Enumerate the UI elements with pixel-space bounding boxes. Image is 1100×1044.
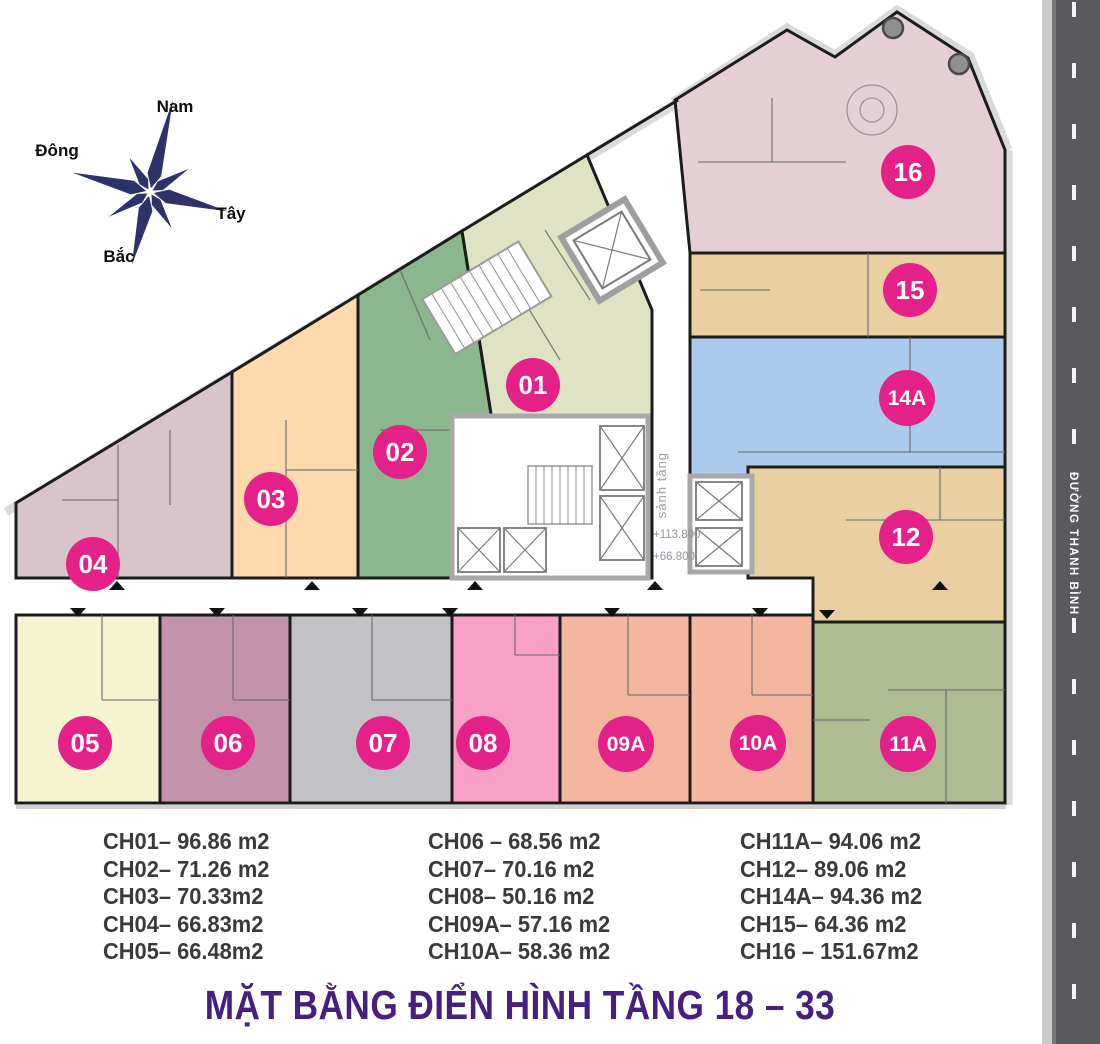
unit-04-area	[16, 372, 232, 578]
legend-item: CH14A– 94.36 m2	[740, 883, 922, 911]
badge-label: 01	[519, 370, 548, 400]
legend-item: CH04– 66.83m2	[103, 911, 269, 939]
unit-03-badge: 03	[244, 472, 298, 526]
legend-item: CH06 – 68.56 m2	[428, 828, 610, 856]
legend-item: CH12– 89.06 m2	[740, 856, 922, 884]
legend-item: CH02– 71.26 m2	[103, 856, 269, 884]
legend-item: CH05– 66.48m2	[103, 938, 269, 966]
unit-04-badge: 04	[66, 537, 120, 591]
badge-label: 16	[894, 157, 923, 187]
corridor-outline-wall	[587, 100, 678, 155]
legend-item: CH03– 70.33m2	[103, 883, 269, 911]
unit-06-area	[160, 615, 290, 803]
unit-11A-area	[813, 622, 1005, 803]
compass-rose: Nam Đông Tây Bắc	[35, 97, 246, 266]
legend-item: CH09A– 57.16 m2	[428, 911, 610, 939]
badge-label: 09A	[607, 733, 646, 756]
road: ĐƯỜNG THANH BÌNH	[1042, 0, 1100, 1044]
level-upper-label: +113.800	[653, 529, 700, 541]
compass-star	[71, 98, 230, 266]
unit-08-badge: 08	[456, 716, 510, 770]
unit-16-badge: 16	[881, 145, 935, 199]
road-curb	[1052, 0, 1056, 1044]
legend-item: CH16 – 151.67m2	[740, 938, 922, 966]
badge-label: 15	[896, 275, 925, 305]
badge-label: 04	[79, 549, 108, 579]
badge-label: 11A	[889, 733, 926, 756]
unit-14A-badge: 14A	[879, 370, 935, 426]
unit-15-area	[690, 253, 1005, 337]
unit-12-badge: 12	[879, 510, 933, 564]
badge-label: 12	[892, 522, 921, 552]
road-name-label: ĐƯỜNG THANH BÌNH	[1067, 472, 1080, 616]
badge-label: 08	[469, 728, 498, 758]
badge-label: 05	[71, 728, 100, 758]
compass-label-bac: Bắc	[103, 247, 134, 266]
unit-11A-badge: 11A	[880, 716, 936, 772]
badge-label: 14A	[888, 387, 927, 410]
compass-label-dong: Đông	[35, 141, 78, 160]
legend-column-2: CH06 – 68.56 m2 CH07– 70.16 m2 CH08– 50.…	[428, 828, 610, 966]
unit-14A-area	[690, 337, 1005, 480]
legend-item: CH07– 70.16 m2	[428, 856, 610, 884]
legend-column-1: CH01– 96.86 m2 CH02– 71.26 m2 CH03– 70.3…	[103, 828, 269, 966]
badge-label: 07	[369, 728, 398, 758]
unit-12-area	[748, 467, 1005, 622]
legend-item: CH15– 64.36 m2	[740, 911, 922, 939]
badge-label: 02	[386, 437, 415, 467]
unit-07-area	[290, 615, 452, 803]
legend-item: CH10A– 58.36 m2	[428, 938, 610, 966]
core-stairs	[528, 466, 592, 524]
lobby-label: sảnh tầng	[654, 452, 669, 518]
badge-label: 03	[257, 484, 286, 514]
unit-06-badge: 06	[201, 716, 255, 770]
badge-label: 06	[214, 728, 243, 758]
unit-09A-badge: 09A	[598, 716, 654, 772]
badge-label: 10A	[739, 732, 778, 755]
unit-07-badge: 07	[356, 716, 410, 770]
unit-10A-badge: 10A	[730, 715, 786, 771]
road-sidewalk	[1042, 0, 1052, 1044]
legend-item: CH08– 50.16 m2	[428, 883, 610, 911]
legend-column-3: CH11A– 94.06 m2 CH12– 89.06 m2 CH14A– 94…	[740, 828, 922, 966]
legend-item: CH01– 96.86 m2	[103, 828, 269, 856]
unit-15-badge: 15	[883, 263, 937, 317]
unit-08-area	[452, 615, 560, 803]
level-lower-label: +66.800	[653, 551, 695, 563]
unit-01-badge: 01	[506, 358, 560, 412]
compass-label-nam: Nam	[157, 97, 194, 116]
unit-09A-area	[560, 615, 690, 803]
floor-plan-page: sảnh tầng +113.800 +66.800 01 02	[0, 0, 1100, 1044]
unit-05-area	[16, 615, 160, 803]
unit-02-badge: 02	[373, 425, 427, 479]
legend-item: CH11A– 94.06 m2	[740, 828, 922, 856]
unit-05-badge: 05	[58, 716, 112, 770]
compass-label-tay: Tây	[216, 204, 246, 223]
unit-03-area	[232, 295, 358, 578]
page-title: MẶT BẰNG ĐIỂN HÌNH TẦNG 18 – 33	[73, 982, 967, 1029]
